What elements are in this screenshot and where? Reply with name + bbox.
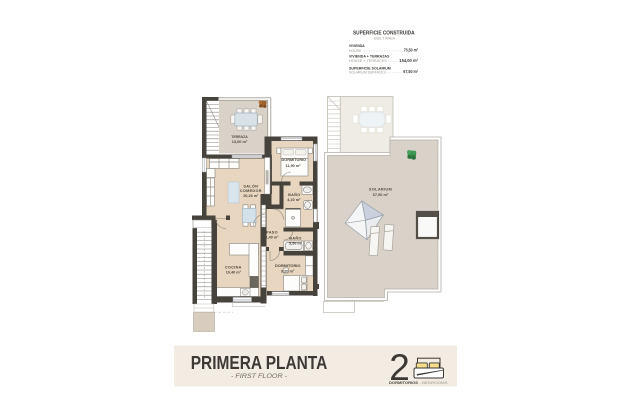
- svg-text:SOLARIUM SURFACES: SOLARIUM SURFACES: [349, 70, 386, 74]
- svg-text:VIVIENDA + TERRAZAS: VIVIENDA + TERRAZAS: [349, 54, 390, 59]
- svg-text:VIVIENDA: VIVIENDA: [349, 43, 365, 48]
- svg-text:HOUSE: HOUSE: [349, 49, 362, 53]
- svg-text:73,50 m²: 73,50 m²: [404, 48, 419, 53]
- svg-text:9,20 m²: 9,20 m²: [281, 270, 295, 274]
- svg-text:PASO: PASO: [266, 231, 278, 235]
- svg-text:11,90 m²: 11,90 m²: [286, 164, 302, 168]
- svg-text:HOUSE + TERRACES: HOUSE + TERRACES: [349, 59, 387, 63]
- svg-text:4,10 m²: 4,10 m²: [287, 198, 301, 202]
- svg-text:COMEDOR: COMEDOR: [240, 189, 262, 193]
- svg-text:- BUILT AREA -: - BUILT AREA -: [372, 35, 398, 40]
- svg-text:PRIMERA PLANTA: PRIMERA PLANTA: [191, 353, 328, 373]
- svg-text:10,40 m²: 10,40 m²: [226, 271, 242, 275]
- svg-text:154,00 m²: 154,00 m²: [399, 58, 418, 63]
- svg-text:DORMITORIO: DORMITORIO: [282, 158, 307, 162]
- svg-text:DORMITORIO: DORMITORIO: [275, 264, 301, 268]
- svg-text:BAÑO: BAÑO: [288, 192, 300, 197]
- svg-text:67,50 m²: 67,50 m²: [403, 69, 418, 74]
- svg-text:1,40 m²: 1,40 m²: [265, 236, 279, 240]
- svg-text:DORMITORIOS: DORMITORIOS: [389, 381, 419, 385]
- svg-text:COCINA: COCINA: [225, 265, 242, 269]
- svg-text:5,50 m²: 5,50 m²: [289, 241, 303, 245]
- svg-text:- BEDROOMS: - BEDROOMS: [420, 381, 449, 385]
- svg-text:20,26 m²: 20,26 m²: [243, 194, 259, 198]
- svg-text:- FIRST FLOOR -: - FIRST FLOOR -: [231, 373, 287, 380]
- svg-text:BAÑO: BAÑO: [289, 235, 301, 240]
- svg-text:SALÓN: SALÓN: [243, 184, 258, 189]
